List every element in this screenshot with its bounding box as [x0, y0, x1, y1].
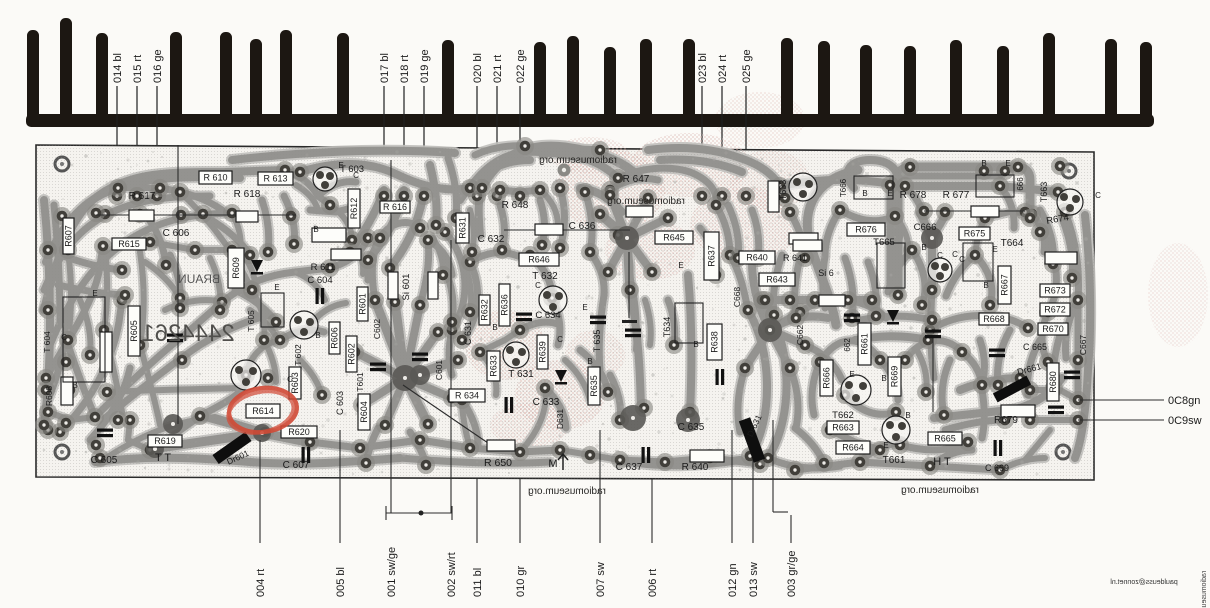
svg-text:662: 662 — [843, 338, 852, 352]
svg-text:R640: R640 — [746, 253, 768, 263]
svg-text:R663: R663 — [832, 423, 854, 433]
svg-text:R619: R619 — [154, 436, 176, 446]
svg-text:R612: R612 — [349, 198, 359, 220]
svg-text:M: M — [548, 458, 557, 470]
svg-text:B: B — [881, 374, 886, 383]
svg-text:R614: R614 — [252, 406, 274, 416]
svg-text:T664: T664 — [1001, 238, 1024, 249]
svg-text:011 bl: 011 bl — [472, 568, 484, 597]
svg-text:C 633: C 633 — [533, 397, 560, 408]
svg-text:C 669: C 669 — [985, 463, 1009, 473]
svg-text:T662: T662 — [832, 410, 854, 421]
svg-text:C 605: C 605 — [91, 455, 118, 466]
svg-text:R646: R646 — [528, 255, 550, 265]
svg-text:025 ge: 025 ge — [741, 49, 753, 83]
svg-text:E: E — [887, 189, 892, 198]
svg-text:R665: R665 — [934, 434, 956, 444]
svg-text:R605: R605 — [129, 320, 139, 342]
svg-text:E: E — [92, 289, 97, 298]
svg-text:R604: R604 — [359, 401, 369, 423]
svg-text:R609: R609 — [231, 257, 241, 279]
svg-text:C602: C602 — [372, 319, 382, 340]
svg-text:radiomuseum.org: radiomuseum.org — [539, 155, 617, 166]
svg-text:C: C — [353, 171, 359, 180]
svg-text:R 647: R 647 — [623, 174, 650, 185]
svg-text:R666: R666 — [822, 367, 832, 389]
svg-text:pauldeuss@zonnet.nl: pauldeuss@zonnet.nl — [1110, 579, 1178, 586]
svg-text:Si 6: Si 6 — [818, 268, 834, 278]
svg-text:C 635: C 635 — [678, 422, 705, 433]
svg-text:C 604: C 604 — [307, 275, 332, 286]
svg-text:R 611: R 611 — [311, 262, 336, 273]
svg-text:C601: C601 — [434, 360, 444, 381]
svg-text:T633: T633 — [778, 180, 788, 201]
svg-text:R661: R661 — [860, 333, 870, 355]
svg-text:R672: R672 — [1044, 305, 1066, 315]
svg-text:R 617: R 617 — [129, 191, 156, 202]
svg-text:010 gr: 010 gr — [515, 565, 527, 597]
svg-text:T 631: T 631 — [508, 369, 534, 380]
svg-text:R639: R639 — [538, 341, 548, 363]
svg-text:E: E — [274, 283, 279, 292]
svg-text:T 605: T 605 — [246, 310, 256, 332]
svg-text:R 610: R 610 — [203, 173, 227, 183]
svg-text:B: B — [492, 323, 497, 332]
svg-text:T634: T634 — [662, 317, 672, 338]
svg-text:R601: R601 — [358, 293, 368, 315]
svg-text:B: B — [921, 243, 926, 252]
svg-text:R 648: R 648 — [502, 200, 529, 211]
svg-text:C: C — [1095, 191, 1101, 200]
svg-text:001 sw/ge: 001 sw/ge — [386, 547, 398, 597]
svg-text:C666: C666 — [914, 222, 937, 233]
svg-text:R608: R608 — [44, 386, 54, 407]
svg-text:023 bl: 023 bl — [697, 53, 709, 83]
svg-text:R635: R635 — [589, 375, 599, 397]
svg-text:0C9sw: 0C9sw — [1168, 415, 1202, 427]
svg-text:R637: R637 — [707, 245, 717, 267]
svg-text:radiomuseum.org: radiomuseum.org — [607, 196, 685, 207]
svg-text:C 607: C 607 — [283, 460, 310, 471]
svg-text:R 678: R 678 — [900, 190, 927, 201]
svg-text:B: B — [313, 225, 318, 234]
svg-text:C: C — [937, 251, 943, 260]
svg-text:R631: R631 — [458, 217, 468, 239]
svg-text:002 sw/rt: 002 sw/rt — [446, 552, 458, 597]
svg-text:R 618: R 618 — [234, 189, 261, 200]
svg-text:R679: R679 — [994, 415, 1018, 426]
svg-text:R 650: R 650 — [484, 457, 512, 469]
svg-text:R 677: R 677 — [943, 190, 970, 201]
svg-text:B: B — [905, 411, 910, 420]
svg-text:005 bl: 005 bl — [335, 567, 347, 597]
svg-text:C: C — [959, 255, 965, 264]
svg-text:017 bl: 017 bl — [379, 53, 391, 83]
svg-text:C: C — [287, 375, 293, 384]
svg-text:022 ge: 022 ge — [515, 49, 527, 83]
svg-text:T 602: T 602 — [293, 344, 303, 366]
svg-text:015 rt: 015 rt — [132, 55, 144, 83]
svg-text:R632: R632 — [480, 299, 490, 321]
svg-text:T666: T666 — [839, 178, 848, 197]
svg-text:T601: T601 — [355, 372, 365, 392]
svg-text:D631: D631 — [555, 409, 565, 430]
svg-text:T663: T663 — [1039, 182, 1049, 203]
svg-text:013 sw: 013 sw — [748, 562, 760, 597]
svg-text:C 631: C 631 — [463, 321, 473, 345]
svg-text:T661: T661 — [883, 455, 906, 466]
svg-text:R606: R606 — [330, 327, 340, 349]
svg-text:R 634: R 634 — [455, 391, 479, 401]
svg-text:R638: R638 — [710, 331, 720, 353]
svg-text:R670: R670 — [1042, 324, 1064, 334]
svg-text:R607: R607 — [64, 225, 74, 247]
svg-text:B: B — [72, 381, 77, 390]
svg-text:E: E — [582, 303, 587, 312]
svg-text:E: E — [338, 161, 343, 170]
svg-text:C 632: C 632 — [478, 234, 505, 245]
svg-text:R664: R664 — [842, 443, 864, 453]
svg-text:C: C — [952, 250, 958, 259]
svg-text:radiomuseum.org: radiomuseum.org — [901, 485, 979, 496]
svg-text:R 616: R 616 — [383, 202, 407, 212]
svg-text:666: 666 — [1016, 177, 1025, 191]
svg-text:C667: C667 — [1078, 335, 1088, 356]
svg-text:T665: T665 — [873, 237, 895, 248]
svg-text:B: B — [862, 189, 867, 198]
svg-text:B: B — [315, 331, 320, 340]
svg-text:E: E — [678, 261, 683, 270]
svg-text:R620: R620 — [288, 427, 310, 437]
svg-text:R 613: R 613 — [263, 174, 287, 184]
svg-text:C 634: C 634 — [535, 310, 560, 321]
svg-text:C 603: C 603 — [335, 391, 345, 415]
svg-text:R 641: R 641 — [783, 253, 807, 263]
svg-text:004 rt: 004 rt — [255, 569, 267, 597]
svg-text:E: E — [883, 441, 888, 450]
svg-text:007 sw: 007 sw — [595, 562, 607, 597]
svg-text:C: C — [557, 335, 563, 344]
svg-text:014 bl: 014 bl — [112, 53, 124, 83]
svg-text:E: E — [1005, 159, 1010, 168]
svg-text:radiomuseum.org: radiomuseum.org — [1201, 571, 1208, 608]
svg-text:024 rt: 024 rt — [717, 55, 729, 83]
svg-text:T T: T T — [155, 452, 171, 464]
svg-text:R680: R680 — [1048, 371, 1058, 393]
svg-text:T 635: T 635 — [592, 330, 602, 353]
svg-text:B: B — [693, 340, 698, 349]
svg-text:radiomuseum.org: radiomuseum.org — [528, 486, 606, 497]
svg-text:019 ge: 019 ge — [419, 49, 431, 83]
svg-text:021 rt: 021 rt — [492, 55, 504, 83]
svg-text:C: C — [535, 281, 541, 290]
svg-text:003 gr/ge: 003 gr/ge — [786, 551, 798, 597]
svg-text:R636: R636 — [500, 294, 510, 316]
svg-text:E: E — [849, 370, 854, 379]
svg-text:E: E — [992, 245, 997, 254]
svg-text:C668: C668 — [732, 287, 742, 308]
svg-text:R669: R669 — [890, 366, 900, 388]
svg-text:R667: R667 — [1000, 274, 1010, 296]
svg-text:R643: R643 — [766, 275, 788, 285]
svg-text:0C8gn: 0C8gn — [1168, 395, 1200, 407]
svg-text:R668: R668 — [983, 314, 1005, 324]
svg-text:Si 601: Si 601 — [401, 274, 412, 301]
svg-text:R676: R676 — [855, 225, 877, 235]
svg-text:C: C — [61, 333, 67, 342]
svg-text:C 636: C 636 — [569, 221, 596, 232]
svg-text:006 rt: 006 rt — [647, 569, 659, 597]
svg-text:R602: R602 — [347, 343, 357, 365]
svg-text:B: B — [587, 357, 592, 366]
svg-text:020 bl: 020 bl — [472, 53, 484, 83]
svg-text:B: B — [983, 281, 988, 290]
svg-text:C 606: C 606 — [163, 228, 190, 239]
svg-text:R633: R633 — [489, 355, 499, 377]
svg-text:C662: C662 — [795, 325, 805, 346]
svg-text:C 637: C 637 — [616, 462, 643, 473]
svg-text:R 640: R 640 — [682, 462, 709, 473]
svg-text:BRAUN: BRAUN — [178, 272, 220, 286]
svg-text:T 604: T 604 — [42, 331, 52, 353]
svg-text:018 rt: 018 rt — [399, 55, 411, 83]
svg-text:H T: H T — [933, 456, 951, 468]
svg-text:R673: R673 — [1044, 286, 1066, 296]
svg-text:R675: R675 — [964, 229, 986, 239]
svg-text:R615: R615 — [118, 239, 140, 249]
svg-text:012 gn: 012 gn — [727, 563, 739, 597]
svg-text:B: B — [981, 159, 986, 168]
svg-text:2444261: 2444261 — [141, 320, 234, 347]
svg-text:C 665: C 665 — [1023, 342, 1047, 352]
svg-text:016 ge: 016 ge — [152, 49, 164, 83]
svg-text:R645: R645 — [663, 233, 685, 243]
